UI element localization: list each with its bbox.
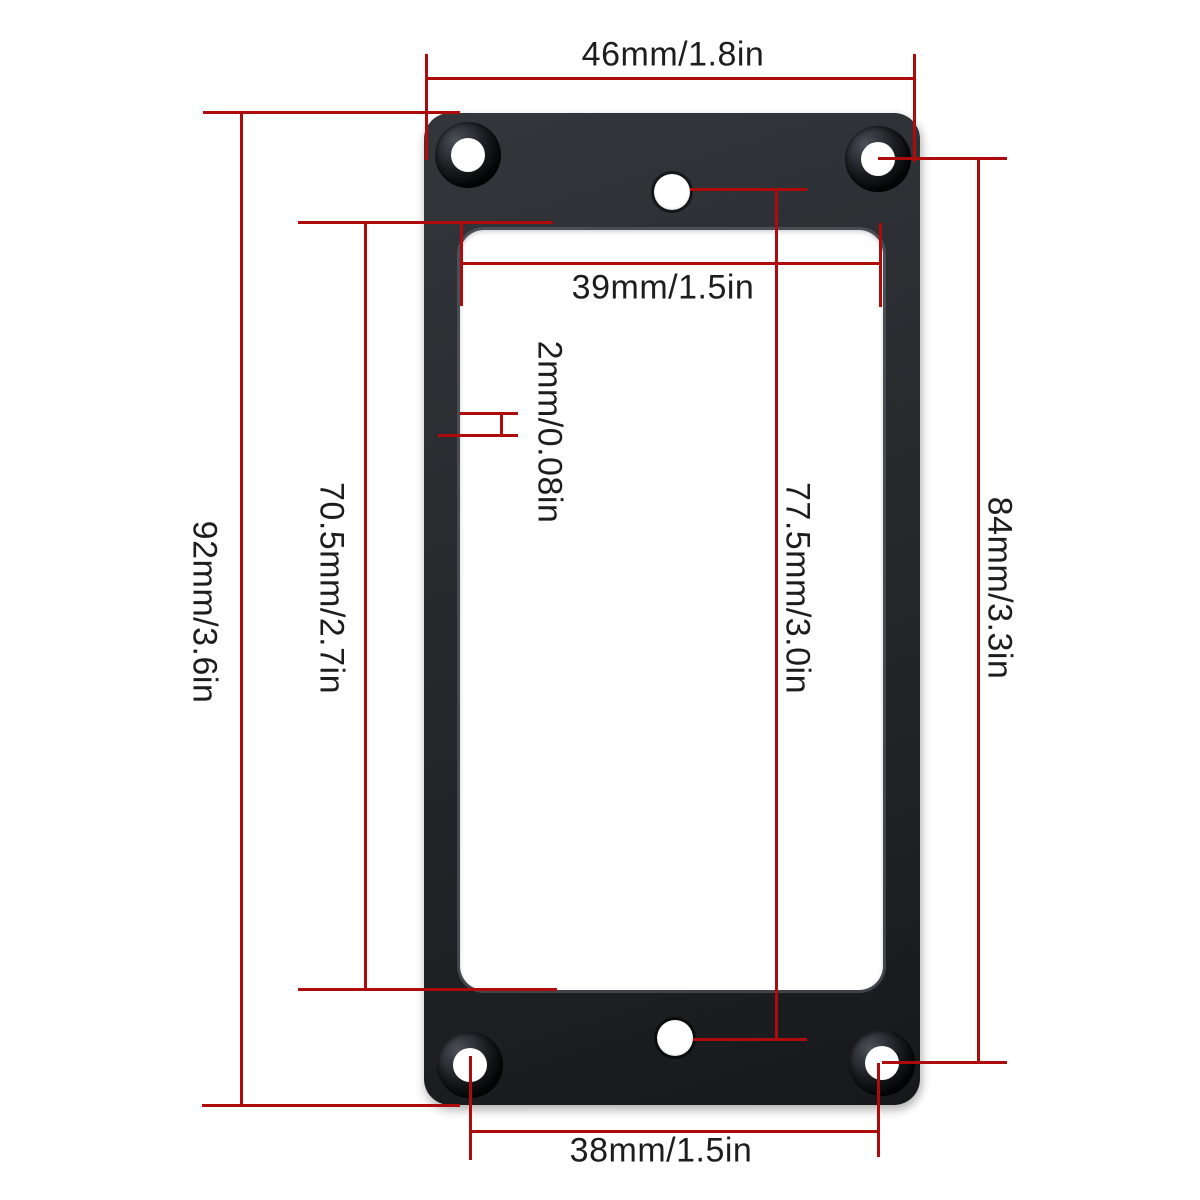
dimension-diagram: 46mm/1.8in 39mm/1.5in 2mm/0.08in 92mm/3.… — [0, 0, 1200, 1200]
dim-bottom-span-label: 38mm/1.5in — [570, 1132, 753, 1171]
dim-center-span-label: 77.5mm/3.0in — [778, 482, 817, 694]
dim-screw-span-ext-bottom — [882, 1061, 1007, 1064]
dim-outer-width-ext-right — [913, 54, 916, 162]
dim-inner-height-label: 70.5mm/2.7in — [312, 482, 351, 694]
dim-outer-width-line — [427, 77, 915, 80]
dim-thickness-line-bottom — [438, 434, 518, 437]
mounting-hole-top-center — [654, 174, 690, 210]
pickup-ring-inner-cutout — [460, 230, 883, 990]
dim-inner-height-ext-bottom — [298, 988, 557, 991]
dim-inner-width-line — [462, 262, 881, 265]
dim-screw-span-ext-top — [878, 157, 1007, 160]
dim-thickness-label: 2mm/0.08in — [530, 341, 569, 524]
dim-thickness-line-top — [460, 412, 518, 415]
dim-bottom-span-ext-right — [877, 1063, 880, 1157]
dim-inner-width-label: 39mm/1.5in — [572, 269, 755, 308]
dim-outer-width-ext-left — [425, 54, 428, 160]
dim-inner-width-ext-right — [879, 223, 882, 307]
mounting-hole-bottom-center — [657, 1020, 693, 1056]
dim-center-span-ext-bottom — [693, 1038, 807, 1041]
dim-inner-height-ext-top — [298, 221, 553, 224]
dim-outer-width-label: 46mm/1.8in — [582, 36, 765, 75]
dim-inner-width-ext-left — [460, 224, 463, 306]
dim-bottom-span-ext-left — [469, 1056, 472, 1160]
dim-thickness-connector — [500, 412, 503, 437]
screw-hole-top-left — [435, 122, 501, 188]
dim-center-span-ext-top — [690, 188, 807, 191]
dim-screw-span-label: 84mm/3.3in — [980, 497, 1019, 680]
dim-outer-height-line — [240, 113, 243, 1106]
dim-outer-height-label: 92mm/3.6in — [185, 521, 224, 704]
dim-inner-height-line — [364, 223, 367, 990]
